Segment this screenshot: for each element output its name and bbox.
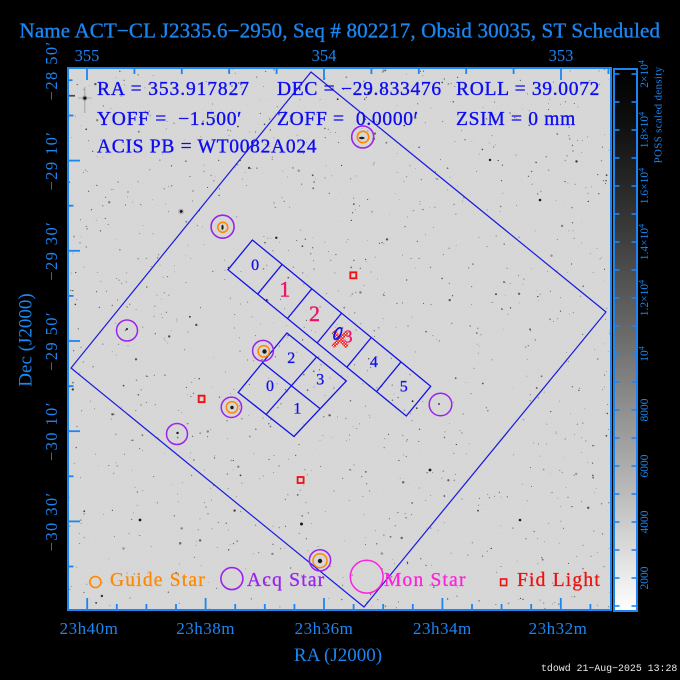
svg-text:23h34m: 23h34m: [413, 619, 472, 638]
svg-text:0: 0: [266, 378, 274, 395]
svg-text:POSS scaled density: POSS scaled density: [653, 66, 665, 163]
svg-text:354: 354: [312, 46, 337, 65]
svg-text:ACIS PB = WT0082A024: ACIS PB = WT0082A024: [97, 137, 317, 158]
svg-text:5: 5: [400, 379, 408, 396]
svg-text:Mon Star: Mon Star: [384, 570, 467, 591]
svg-text:353: 353: [549, 46, 574, 65]
svg-text:tdowd 21−Aug−2025 13:28: tdowd 21−Aug−2025 13:28: [541, 663, 677, 674]
svg-text:Name ACT−CL J2335.6−2950, Seq: Name ACT−CL J2335.6−2950, Seq # 802217, …: [20, 19, 661, 43]
svg-text:0: 0: [251, 257, 259, 274]
svg-text:RA (J2000): RA (J2000): [294, 645, 382, 666]
svg-text:1.8×104: 1.8×104: [637, 112, 651, 148]
svg-text:6000: 6000: [639, 454, 651, 477]
svg-text:23h32m: 23h32m: [529, 619, 588, 638]
svg-text:3: 3: [316, 371, 324, 388]
svg-text:355: 355: [75, 46, 100, 65]
svg-text:−29 50′: −29 50′: [42, 311, 61, 371]
svg-text:2×104: 2×104: [637, 60, 651, 88]
svg-text:23h36m: 23h36m: [295, 619, 354, 638]
svg-text:23h40m: 23h40m: [60, 619, 119, 638]
svg-text:8000: 8000: [639, 398, 651, 421]
svg-text:Acq Star: Acq Star: [247, 570, 325, 591]
svg-text:1: 1: [279, 277, 290, 302]
svg-text:Dec (J2000): Dec (J2000): [16, 293, 37, 386]
svg-text:−30 10′: −30 10′: [42, 401, 61, 461]
svg-text:1: 1: [293, 401, 301, 418]
svg-text:Fid Light: Fid Light: [517, 570, 601, 591]
svg-text:−29 10′: −29 10′: [42, 131, 61, 191]
svg-text:4000: 4000: [639, 510, 651, 533]
svg-text:−28 50′: −28 50′: [42, 40, 61, 100]
svg-text:ROLL = 39.0072: ROLL = 39.0072: [456, 79, 600, 100]
svg-text:ZSIM = 0 mm: ZSIM = 0 mm: [456, 109, 576, 130]
svg-text:DEC = −29.833476: DEC = −29.833476: [277, 79, 442, 100]
svg-text:4: 4: [370, 354, 378, 371]
svg-text:YOFF = −1.500′: YOFF = −1.500′: [97, 109, 242, 130]
svg-text:2: 2: [287, 350, 295, 367]
svg-text:23h38m: 23h38m: [176, 619, 235, 638]
svg-text:1.4×104: 1.4×104: [637, 224, 651, 260]
svg-text:1.6×104: 1.6×104: [637, 168, 651, 204]
svg-text:RA = 353.917827: RA = 353.917827: [97, 79, 250, 100]
svg-text:1.2×104: 1.2×104: [637, 280, 651, 316]
svg-text:−29 30′: −29 30′: [42, 221, 61, 281]
svg-text:2: 2: [309, 301, 320, 326]
svg-text:2000: 2000: [639, 566, 651, 589]
svg-text:−30 30′: −30 30′: [42, 491, 61, 551]
svg-text:Guide Star: Guide Star: [110, 570, 206, 591]
svg-text:ZOFF = 0.0000′: ZOFF = 0.0000′: [277, 109, 419, 130]
